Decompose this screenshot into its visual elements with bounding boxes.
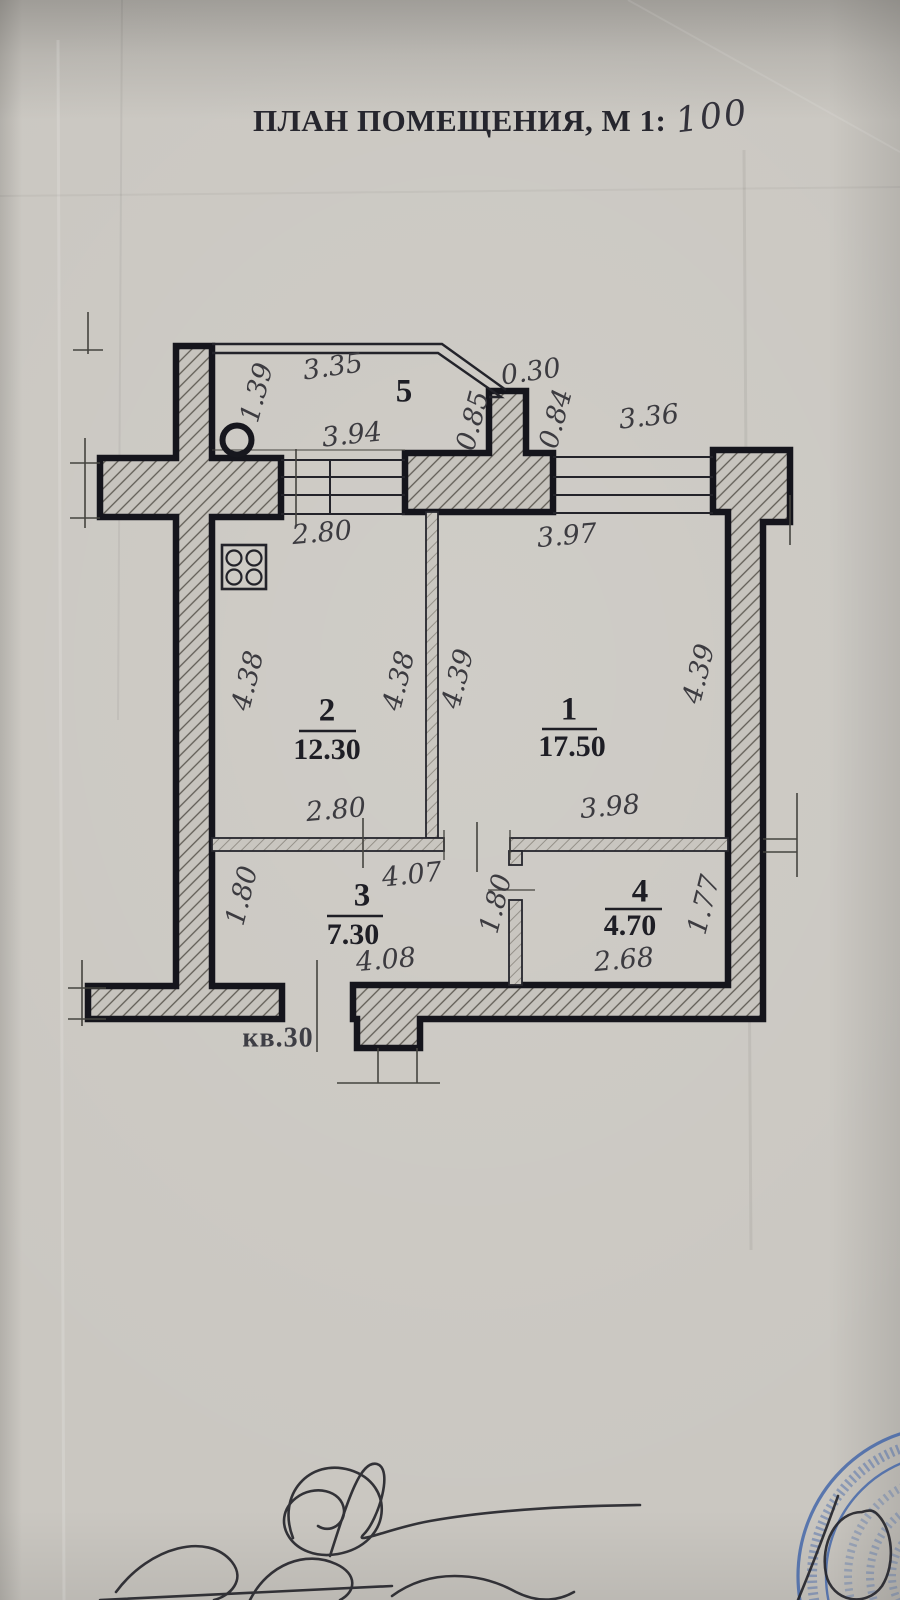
window-room1 (553, 457, 713, 513)
floor-plan-svg: 1.39 3.35 0.30 0.85 0.84 3.36 3.94 2.80 … (0, 0, 900, 1600)
svg-text:12.30: 12.30 (293, 733, 361, 766)
dim-hall-top: 4.07 (379, 856, 444, 893)
dim-win-right-out: 3.36 (617, 398, 680, 435)
room-label-1: 1 17.50 (538, 692, 606, 763)
dim-room1-left: 4.39 (435, 646, 480, 713)
svg-text:2: 2 (319, 693, 336, 729)
svg-text:4.70: 4.70 (604, 909, 657, 942)
dim-room1-bottom: 3.98 (579, 789, 642, 825)
svg-text:1: 1 (561, 692, 578, 728)
room-label-2: 2 12.30 (293, 693, 361, 766)
svg-text:17.50: 17.50 (538, 730, 606, 763)
dim-room4-right: 1.77 (682, 871, 727, 938)
dim-room1-top: 3.97 (536, 518, 599, 554)
signatures (100, 1464, 891, 1600)
dim-kitchen-bottom: 2.80 (304, 792, 368, 828)
partition-room3-room4 (509, 900, 522, 985)
dim-room4-bottom: 2.68 (592, 942, 656, 978)
dim-balcony-depth: 1.39 (234, 360, 280, 426)
handwritten-mark-strokes (798, 1496, 838, 1600)
dim-kitchen-left: 4.38 (225, 648, 270, 715)
svg-text:7.30: 7.30 (327, 918, 380, 951)
window-balcony (281, 460, 405, 514)
dim-balcony-bottom: 3.94 (320, 416, 383, 453)
partition-top-bottom-right (510, 838, 728, 851)
dim-balcony-corner: 0.30 (499, 352, 563, 391)
svg-text:3: 3 (354, 878, 371, 914)
dim-hall-left: 1.80 (220, 863, 265, 929)
stove-icon (222, 545, 266, 589)
round-stamp (798, 1426, 900, 1600)
scanned-page: ПЛАН ПОМЕЩЕНИЯ, М 1:100 (0, 0, 900, 1600)
room-label-5: 5 (396, 374, 413, 410)
dim-pillar-right: 0.84 (533, 386, 579, 452)
dim-kitchen-right: 4.38 (376, 648, 421, 715)
partition-room3-room4-stub (509, 851, 522, 865)
svg-text:4: 4 (632, 874, 649, 910)
dim-kitchen-top: 2.80 (290, 515, 354, 551)
room-label-3: 3 7.30 (327, 878, 383, 951)
partition-room2-room1 (426, 512, 438, 838)
room-label-4: 4 4.70 (604, 874, 662, 942)
dimension-labels: 1.39 3.35 0.30 0.85 0.84 3.36 3.94 2.80 … (220, 347, 727, 978)
apartment-label: кв.30 (242, 1022, 313, 1053)
dim-room1-right: 4.39 (676, 641, 721, 708)
partition-top-bottom-left (212, 838, 444, 851)
